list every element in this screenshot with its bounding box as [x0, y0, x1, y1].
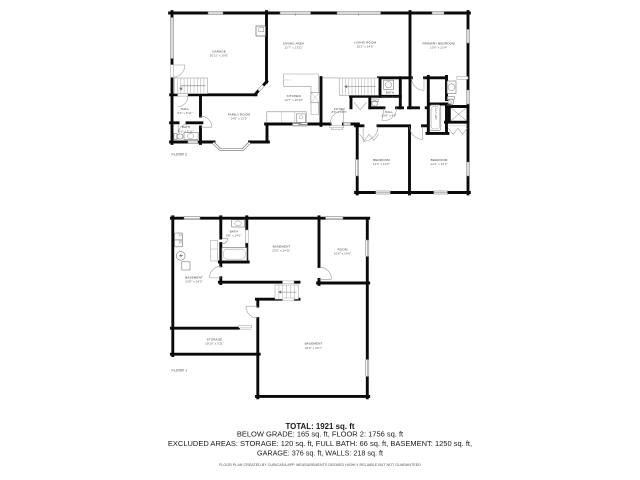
svg-text:11'8" x 5'1": 11'8" x 5'1": [434, 107, 438, 120]
svg-text:EXCLUDED AREAS: STORAGE: 120 s: EXCLUDED AREAS: STORAGE: 120 sq. ft, FUL…: [168, 439, 472, 448]
svg-text:FLOOR PLAN CREATED BY CUBICASA: FLOOR PLAN CREATED BY CUBICASA APP. MEAS…: [219, 463, 421, 467]
svg-text:14'5" x 13'9": 14'5" x 13'9": [230, 117, 247, 121]
svg-text:13'6" x 21'4": 13'6" x 21'4": [430, 45, 447, 49]
svg-text:23'5" x 14'11": 23'5" x 14'11": [272, 249, 291, 253]
svg-text:14'1" x 13'0": 14'1" x 13'0": [430, 162, 447, 166]
svg-text:BATH: BATH: [386, 90, 394, 94]
svg-text:FLOOR 2: FLOOR 2: [172, 153, 188, 157]
svg-text:BATH: BATH: [182, 125, 190, 129]
svg-text:9'2" x 5'11": 9'2" x 5'11": [177, 111, 192, 115]
svg-text:20'2" x 14'6": 20'2" x 14'6": [357, 44, 374, 48]
svg-text:11'4" x 13'0": 11'4" x 13'0": [373, 162, 390, 166]
svg-text:GARAGE: 376 sq. ft, WALLS: 218: GARAGE: 376 sq. ft, WALLS: 218 sq. ft: [257, 449, 383, 458]
svg-text:12'7" x 13'11": 12'7" x 13'11": [284, 45, 303, 49]
svg-text:10'6" x 14'6": 10'6" x 14'6": [334, 252, 351, 256]
svg-text:13'8" x 4'0": 13'8" x 4'0": [381, 114, 396, 118]
svg-text:20'11" x 19'5": 20'11" x 19'5": [210, 54, 229, 58]
svg-text:12'7" x 10'10": 12'7" x 10'10": [284, 98, 303, 102]
svg-text:23'8" x 24'0": 23'8" x 24'0": [185, 280, 202, 284]
svg-text:BELOW GRADE: 165 sq. ft, FLOOR: BELOW GRADE: 165 sq. ft, FLOOR 2: 1756 s…: [237, 429, 404, 438]
svg-text:6'0" x 5'11": 6'0" x 5'11": [178, 129, 193, 133]
svg-text:8'6" x 10'5": 8'6" x 10'5": [332, 110, 347, 114]
svg-text:FLOOR 1: FLOOR 1: [172, 369, 188, 373]
svg-text:24'6" x 23'7": 24'6" x 23'7": [305, 346, 322, 350]
svg-text:19'10" x 5'11": 19'10" x 5'11": [205, 342, 224, 346]
svg-text:5'8" x 14'0": 5'8" x 14'0": [226, 234, 241, 238]
svg-text:5'10" x 4'10": 5'10" x 4'10": [381, 95, 398, 99]
